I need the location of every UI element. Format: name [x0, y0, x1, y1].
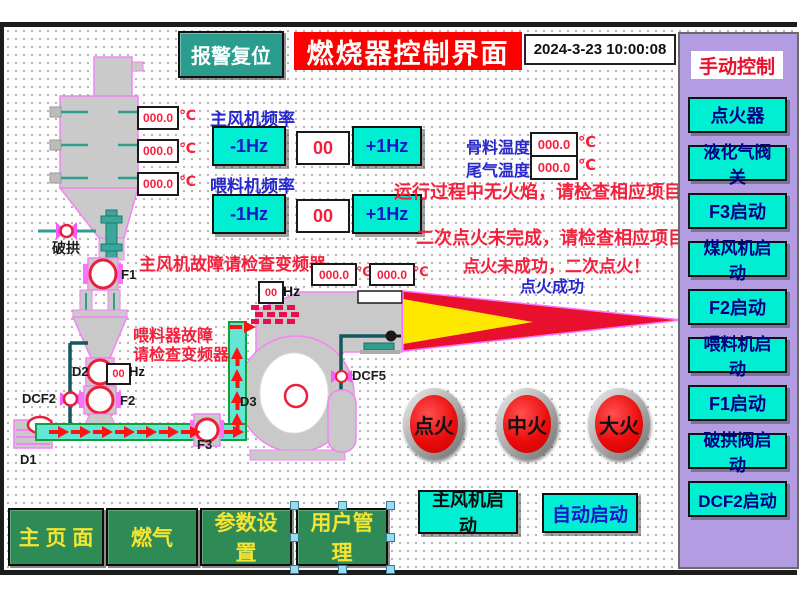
selection-handle[interactable]	[386, 501, 395, 510]
selection-handle[interactable]	[386, 565, 395, 574]
selection-handle[interactable]	[290, 501, 299, 510]
break-arch-valve-start-button[interactable]: 破拱阀启动	[688, 433, 787, 469]
feeder-hz-unit: Hz	[129, 364, 145, 379]
f3-label: F3	[197, 437, 212, 452]
f3-start-button[interactable]: F3启动	[688, 193, 787, 229]
d2-label: D2	[72, 364, 89, 379]
igniter-button[interactable]: 点火器	[688, 97, 787, 133]
feeder-freq-decrease-button[interactable]: -1Hz	[212, 194, 286, 234]
alarm-main-fan-fault: 主风机故障请检查变频器	[139, 250, 326, 275]
aggregate-temp-label: 骨料温度	[466, 134, 530, 158]
lower-hopper	[73, 310, 127, 358]
main-fan-freq-increase-button[interactable]: +1Hz	[352, 126, 422, 166]
aggregate-temp-unit: ℃	[578, 133, 596, 151]
hopper-temp-display-1: 000.0	[137, 106, 179, 130]
alarm-feeder-fault-line2: 请检查变频器	[133, 341, 229, 365]
main-fan-hz-unit: Hz	[283, 283, 300, 299]
d1-label: D1	[20, 452, 37, 467]
main-fan-freq-decrease-button[interactable]: -1Hz	[212, 126, 286, 166]
manual-control-panel: 手动控制 点火器 液化气阀关 F3启动 煤风机启动 F2启动 喂料机启动 F1启…	[678, 32, 799, 569]
high-fire-button-label: 大火	[595, 395, 643, 453]
f2-valve	[79, 386, 121, 428]
feeder-freq-value: 00	[296, 199, 350, 233]
break-arch-label: 破拱	[52, 238, 80, 258]
feeder-hz-display: 00	[106, 363, 131, 385]
ignite-button-label: 点火	[410, 395, 458, 453]
f2-start-button[interactable]: F2启动	[688, 289, 787, 325]
ignite-button[interactable]: 点火	[403, 388, 465, 460]
main-fan-freq-value: 00	[296, 131, 350, 165]
dcf5-label: DCF5	[352, 368, 386, 383]
medium-fire-button-label: 中火	[503, 395, 551, 453]
nav-parameter-settings-button[interactable]: 参数设置	[200, 508, 292, 566]
f1-label: F1	[121, 267, 136, 282]
burner-temp-unit-2: ℃	[413, 264, 429, 280]
dcf2-start-button[interactable]: DCF2启动	[688, 481, 787, 517]
burner-temp-display-1: 000.0	[311, 263, 357, 286]
aggregate-temp-value: 000.0	[530, 132, 578, 157]
alarm-reset-button[interactable]: 报警复位	[178, 31, 284, 78]
hopper-temp-display-2: 000.0	[137, 139, 179, 163]
exhaust-temp-unit: ℃	[578, 156, 596, 174]
burner-temp-display-2: 000.0	[369, 263, 415, 286]
exhaust-temp-value: 000.0	[530, 155, 578, 180]
hopper-temp-unit-1: ℃	[179, 107, 196, 124]
hmi-burner-screen: 报警复位 燃烧器控制界面 2024-3-23 10:00:08 手动控制 点火器…	[0, 0, 800, 600]
selection-handle[interactable]	[338, 501, 347, 510]
selection-handle[interactable]	[290, 565, 299, 574]
d3-label: D3	[240, 394, 257, 409]
coal-fan-start-button[interactable]: 煤风机启动	[688, 241, 787, 277]
selection-handle[interactable]	[386, 533, 395, 542]
f1-start-button[interactable]: F1启动	[688, 385, 787, 421]
hopper-temp-unit-2: ℃	[179, 140, 196, 157]
nav-user-management-button[interactable]: 用户管理	[296, 508, 388, 566]
nav-gas-button[interactable]: 燃气	[106, 508, 198, 566]
hopper-temp-unit-3: ℃	[179, 173, 196, 190]
feeder-start-button[interactable]: 喂料机启动	[688, 337, 787, 373]
flame	[403, 291, 682, 351]
nav-main-page-button[interactable]: 主 页 面	[8, 508, 104, 566]
auto-start-button[interactable]: 自动启动	[542, 493, 638, 533]
selection-handle[interactable]	[338, 565, 347, 574]
status-ignition-success: 点火成功	[520, 273, 584, 297]
hopper-temp-display-3: 000.0	[137, 172, 179, 196]
main-fan-start-button[interactable]: 主风机启动	[418, 490, 518, 534]
dcf2-label: DCF2	[22, 391, 56, 406]
manual-control-title: 手动控制	[691, 51, 783, 79]
f1-valve	[83, 258, 123, 290]
datetime-display: 2024-3-23 10:00:08	[524, 34, 676, 65]
main-fan-hz-display: 00	[258, 281, 284, 304]
lpg-valve-close-button[interactable]: 液化气阀关	[688, 145, 787, 181]
page-title: 燃烧器控制界面	[294, 32, 522, 70]
heater-element	[251, 305, 299, 324]
high-fire-button[interactable]: 大火	[588, 388, 650, 460]
selection-handle[interactable]	[290, 533, 299, 542]
f2-label: F2	[120, 393, 135, 408]
medium-fire-button[interactable]: 中火	[496, 388, 558, 460]
